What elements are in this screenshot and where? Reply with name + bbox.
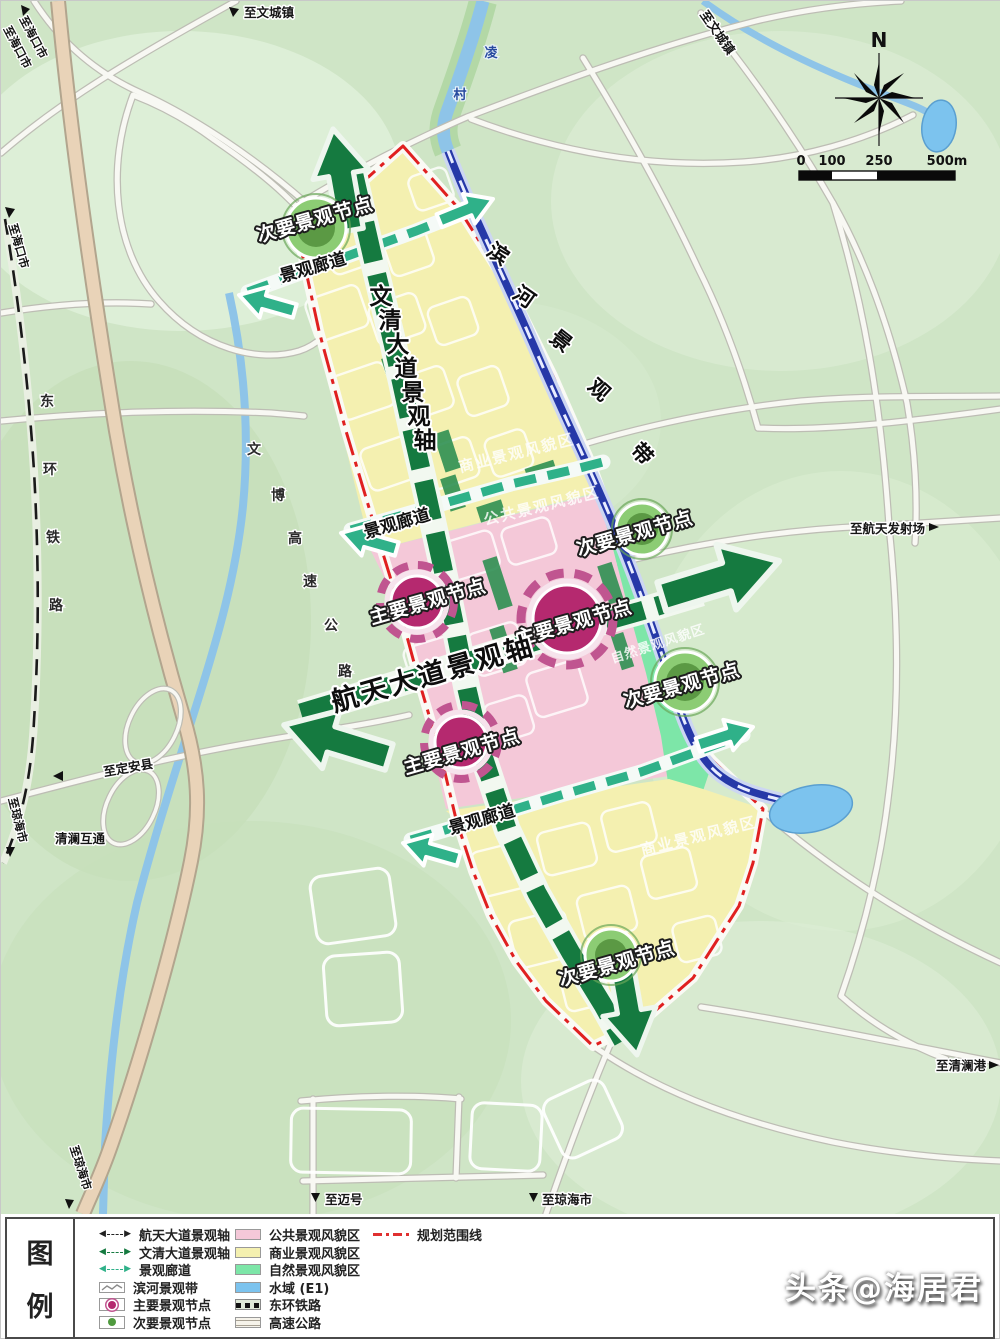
legend-item: 规划范围线 [373,1228,482,1241]
edge-label-qionghai-road: 至琼海市 [542,1192,593,1207]
legend-item-label: 高速公路 [269,1313,321,1332]
legend-item: 次要景观节点 [99,1316,230,1329]
legend-item-label: 商业景观风貌区 [269,1243,360,1262]
wenqing-axis-char: 文 [370,283,394,310]
railway-char: 铁 [46,529,60,546]
legend-item-label: 景观廊道 [139,1260,191,1279]
edge-label-qinglan-interchange: 清澜互通 [55,831,106,846]
scale-tick: 0 [796,154,805,169]
compass-n-label: N [871,28,888,52]
legend-title-char: 例 [27,1285,54,1324]
main-node-swatch-icon [99,1298,125,1311]
legend-item-label: 规划范围线 [417,1225,482,1244]
wenqing-axis-char: 清 [379,308,402,334]
watermark: 头条@海居君 [785,1263,983,1308]
expressway-char: 公 [324,618,338,634]
legend-item: 主要景观节点 [99,1298,230,1311]
axis-arrow-swatch-icon: ◀▶ [99,1248,131,1257]
edge-label-launch-site: 至航天发射场 [850,521,925,536]
legend-item-label: 自然景观风貌区 [269,1260,360,1279]
planning-map: 商业景观风貌区 公共景观风貌区 自然景观风貌区 商业景观风貌区 景观廊道 景观廊… [1,1,1000,1214]
legend-item-label: 航天大道景观轴 [139,1225,230,1244]
legend-item: 商业景观风貌区 [235,1246,360,1259]
secondary-node-swatch-icon [99,1316,125,1329]
commercial-zone-swatch-icon [235,1247,261,1258]
legend-item-label: 水域 (E1) [269,1278,329,1297]
corridor-arrow-swatch-icon: ◀▶ [99,1265,131,1274]
legend-item-label: 滨河景观带 [133,1278,198,1297]
highway-swatch-icon [235,1317,261,1328]
wenqing-axis-char: 轴 [414,427,437,454]
railway-char: 东 [40,393,54,410]
legend-title-char: 图 [27,1232,54,1271]
river-belt-swatch-icon [99,1282,125,1293]
wenqing-axis-char: 道 [395,355,418,382]
scale-tick: 100 [818,154,845,169]
legend-item-label: 东环铁路 [269,1295,321,1314]
expressway-char: 高 [288,530,302,547]
legend-item-label: 文清大道景观轴 [139,1243,230,1262]
legend-item: 自然景观风貌区 [235,1263,360,1276]
edge-label-wencheng-top: 至文城镇 [244,5,295,20]
legend-item: 东环铁路 [235,1298,360,1311]
scale-bar: 0 100 250 500m [796,154,967,180]
railway-swatch-icon [235,1299,261,1310]
wenqing-axis-char: 景 [402,380,425,406]
expressway-char: 博 [271,487,285,504]
legend-item: 水域 (E1) [235,1281,360,1294]
river-name-char: 凌 [484,45,498,61]
legend-item: ◀▶ 景观廊道 [99,1263,230,1276]
railway-char: 路 [49,597,64,614]
legend-column-2: 公共景观风貌区 商业景观风貌区 自然景观风貌区 水域 (E1) 东环铁路 高速公… [235,1228,360,1329]
boundary-swatch-icon [373,1233,409,1236]
scale-tick: 500m [927,154,968,169]
legend-item: 高速公路 [235,1316,360,1329]
water-swatch-icon [235,1282,261,1293]
legend-item-label: 次要景观节点 [133,1313,211,1332]
legend-item: 滨河景观带 [99,1281,230,1294]
scale-tick: 250 [865,154,892,169]
edge-label-maihao: 至迈号 [325,1192,363,1207]
wenqing-axis-char: 大 [387,332,410,358]
legend-item-label: 主要景观节点 [133,1295,211,1314]
expressway-char: 文 [247,441,262,458]
railway-char: 环 [43,462,57,478]
expressway-char: 路 [338,663,353,680]
legend-title: 图 例 [7,1219,75,1337]
river-name-char: 村 [453,87,466,103]
legend-column-3: 规划范围线 [373,1228,482,1241]
public-zone-swatch-icon [235,1229,261,1240]
legend-column-1: ◀▶ 航天大道景观轴 ◀▶ 文清大道景观轴 ◀▶ 景观廊道 滨河景观带 主要景观… [99,1228,230,1329]
edge-label-qinglan-port: 至清澜港 [936,1058,987,1073]
wenqing-axis-char: 观 [408,404,431,430]
legend-item: 公共景观风貌区 [235,1228,360,1241]
axis-arrow-swatch-icon: ◀▶ [99,1230,131,1239]
planning-map-page: 商业景观风貌区 公共景观风貌区 自然景观风貌区 商业景观风貌区 景观廊道 景观廊… [0,0,1000,1339]
expressway-char: 速 [303,573,317,590]
legend-item-label: 公共景观风貌区 [269,1225,360,1244]
legend-item: ◀▶ 航天大道景观轴 [99,1228,230,1241]
legend-item: ◀▶ 文清大道景观轴 [99,1246,230,1259]
natural-zone-swatch-icon [235,1264,261,1275]
